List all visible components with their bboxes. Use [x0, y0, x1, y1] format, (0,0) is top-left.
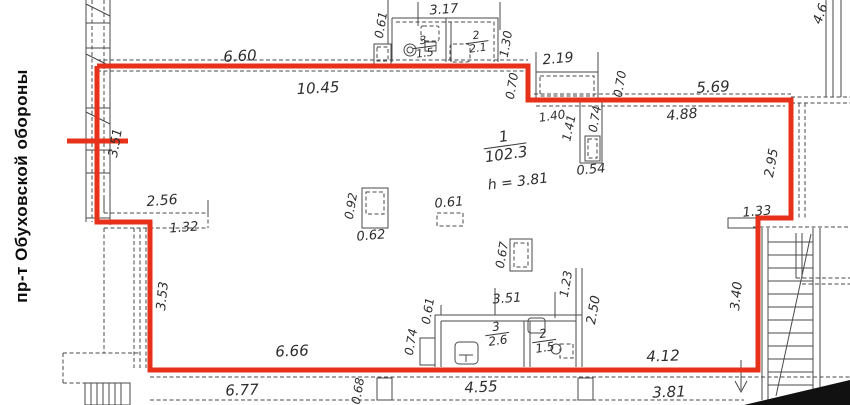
- floor-plan: пр-т Обуховской обороны 3 1.5 2 2.1 1 10…: [0, 0, 850, 405]
- toilet-icon: [455, 342, 478, 364]
- floorplan-drawing: [0, 0, 850, 405]
- dimension-label: 3.81: [652, 382, 686, 401]
- dimension-label: 3.53: [154, 281, 172, 311]
- street-name-label: пр-т Обуховской обороны: [12, 36, 32, 336]
- dimension-label: 4.12: [646, 346, 680, 365]
- dimension-label: 0.61: [434, 194, 464, 211]
- dimension-label: 0.54: [576, 161, 606, 178]
- dimension-label: 1.32: [169, 220, 199, 237]
- dimension-label: 1.33: [742, 203, 772, 220]
- dimension-label: 3.17: [429, 2, 459, 19]
- dimension-label: 10.45: [296, 78, 340, 98]
- dimension-label: 2.19: [542, 50, 574, 69]
- dimension-label: 3.51: [492, 291, 522, 308]
- dimension-label: 4.55: [464, 377, 498, 397]
- column: [510, 239, 532, 271]
- column: [437, 213, 463, 226]
- staircase: [735, 228, 820, 400]
- dimension-label: 6.60: [223, 46, 257, 66]
- dimension-label: 4.88: [666, 106, 698, 125]
- dimension-label: 6.77: [225, 380, 259, 399]
- dimension-label: 0.62: [356, 227, 386, 244]
- dimension-label: 6.66: [275, 341, 309, 360]
- dimension-label: 2.56: [146, 192, 178, 210]
- room-area-label: 3 2.6: [483, 319, 510, 349]
- room-area-label: 3 1.5: [411, 33, 437, 61]
- scan-artifact: [744, 380, 850, 405]
- main-room-area-label: 1 102.3: [481, 127, 528, 166]
- dimension-label: 3.40: [728, 281, 746, 311]
- dimension-label: 5.69: [696, 77, 730, 97]
- pilaster-bottom: [420, 338, 435, 365]
- wall-bottom-wc: [435, 315, 582, 321]
- stair-direction-arrow: [735, 360, 747, 392]
- room-area-label: 2 1.5: [530, 326, 557, 356]
- room-area-label: 2 2.1: [464, 28, 490, 56]
